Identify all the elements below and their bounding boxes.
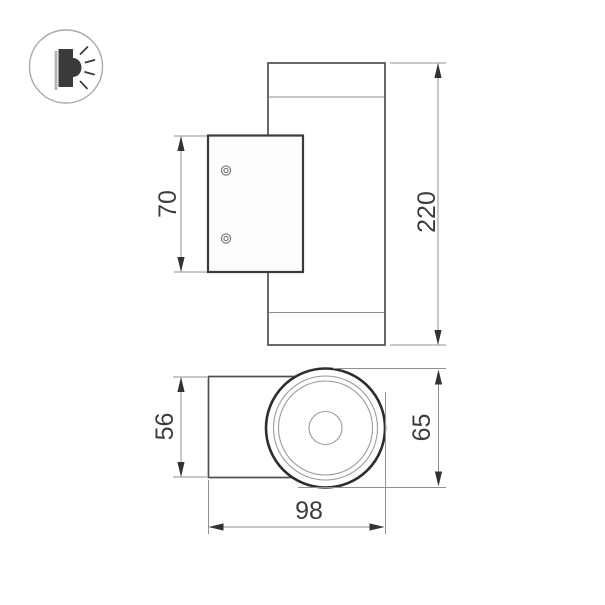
- arrow-down-icon: [177, 462, 184, 477]
- arrow-down-icon: [434, 330, 441, 345]
- dimension-body-depth: 56: [151, 377, 207, 477]
- fixture-body: [59, 49, 74, 87]
- arrow-down-icon: [177, 257, 184, 272]
- drawing-canvas: 70 220 56 65: [0, 0, 605, 605]
- arrow-up-icon: [177, 377, 184, 392]
- dimension-bracket-height: 70: [154, 136, 207, 272]
- dim-label-bracket-height: 70: [154, 190, 182, 218]
- dim-label-body-depth: 56: [151, 413, 179, 441]
- dim-label-overall-height: 220: [413, 191, 441, 233]
- side-view: [208, 63, 385, 345]
- arrow-right-icon: [370, 523, 385, 530]
- dimension-overall-height: 220: [390, 63, 446, 345]
- top-view: [209, 369, 386, 488]
- cylinder-outline: [266, 369, 385, 488]
- dim-label-body-diameter: 65: [408, 414, 436, 442]
- arrow-up-icon: [434, 63, 441, 78]
- arrow-up-icon: [177, 136, 184, 151]
- dim-label-overall-width: 98: [295, 497, 323, 525]
- wall-light-icon: [30, 30, 103, 103]
- arrow-left-icon: [209, 523, 224, 530]
- technical-drawing-svg: 70 220 56 65: [0, 0, 605, 605]
- mounting-plate: [208, 136, 303, 273]
- arrow-up-icon: [435, 370, 442, 385]
- arrow-down-icon: [435, 472, 442, 487]
